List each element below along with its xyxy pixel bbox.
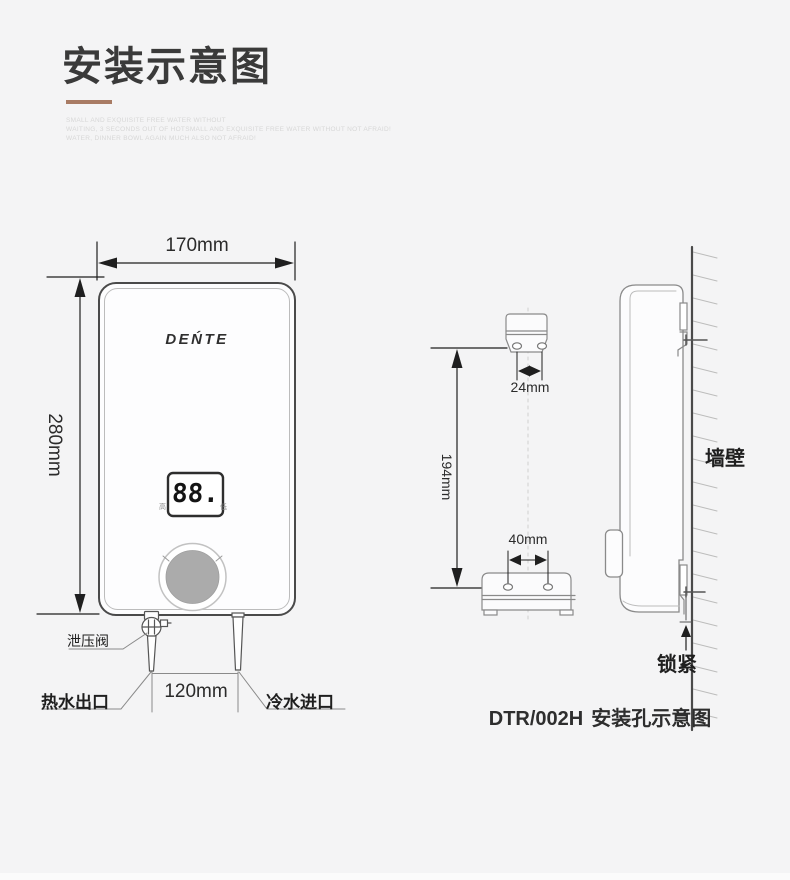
model-number: DTR/002H — [489, 708, 583, 730]
dim-bottom-holes-label: 40mm — [498, 531, 558, 547]
knob-low-label: 低 — [220, 502, 227, 512]
knob-high-label: 高 — [159, 502, 166, 512]
brand-logo: DEŃTE — [99, 331, 295, 348]
dim-vertical-label: 194mm — [439, 437, 455, 517]
lock-label: 锁紧 — [657, 648, 697, 677]
diagram-caption: DTR/002H安装孔示意图 — [455, 702, 745, 731]
lock-pointer-arrow — [681, 625, 691, 650]
installation-diagram — [0, 0, 790, 880]
hot-outlet-label: 热水出口 — [41, 688, 109, 713]
dim-width-label: 170mm — [150, 235, 244, 257]
cold-water-pipe — [232, 613, 244, 670]
relief-valve-label: 泄压阀 — [67, 631, 109, 651]
hot-water-pipe — [148, 636, 157, 671]
heater-side-profile — [620, 285, 683, 612]
cold-inlet-label: 冷水进口 — [266, 688, 334, 713]
dim-top-holes-label: 24mm — [500, 379, 560, 395]
top-bracket — [506, 314, 547, 352]
bottom-bracket — [482, 573, 575, 615]
dim-height-label: 280mm — [47, 397, 65, 493]
caption-text: 安装孔示意图 — [591, 708, 711, 730]
control-knob — [159, 544, 226, 611]
knob-side-profile — [606, 530, 623, 577]
page-background: 安装示意图 SMALL AND EXQUISITE FREE WATER WIT… — [0, 0, 790, 880]
section-divider — [0, 873, 790, 880]
dim-pipe-spacing-label: 120mm — [153, 681, 239, 703]
display-value: 88. — [167, 473, 224, 516]
dim-top-holes-24 — [517, 352, 542, 380]
wall-label: 墙壁 — [705, 442, 745, 471]
